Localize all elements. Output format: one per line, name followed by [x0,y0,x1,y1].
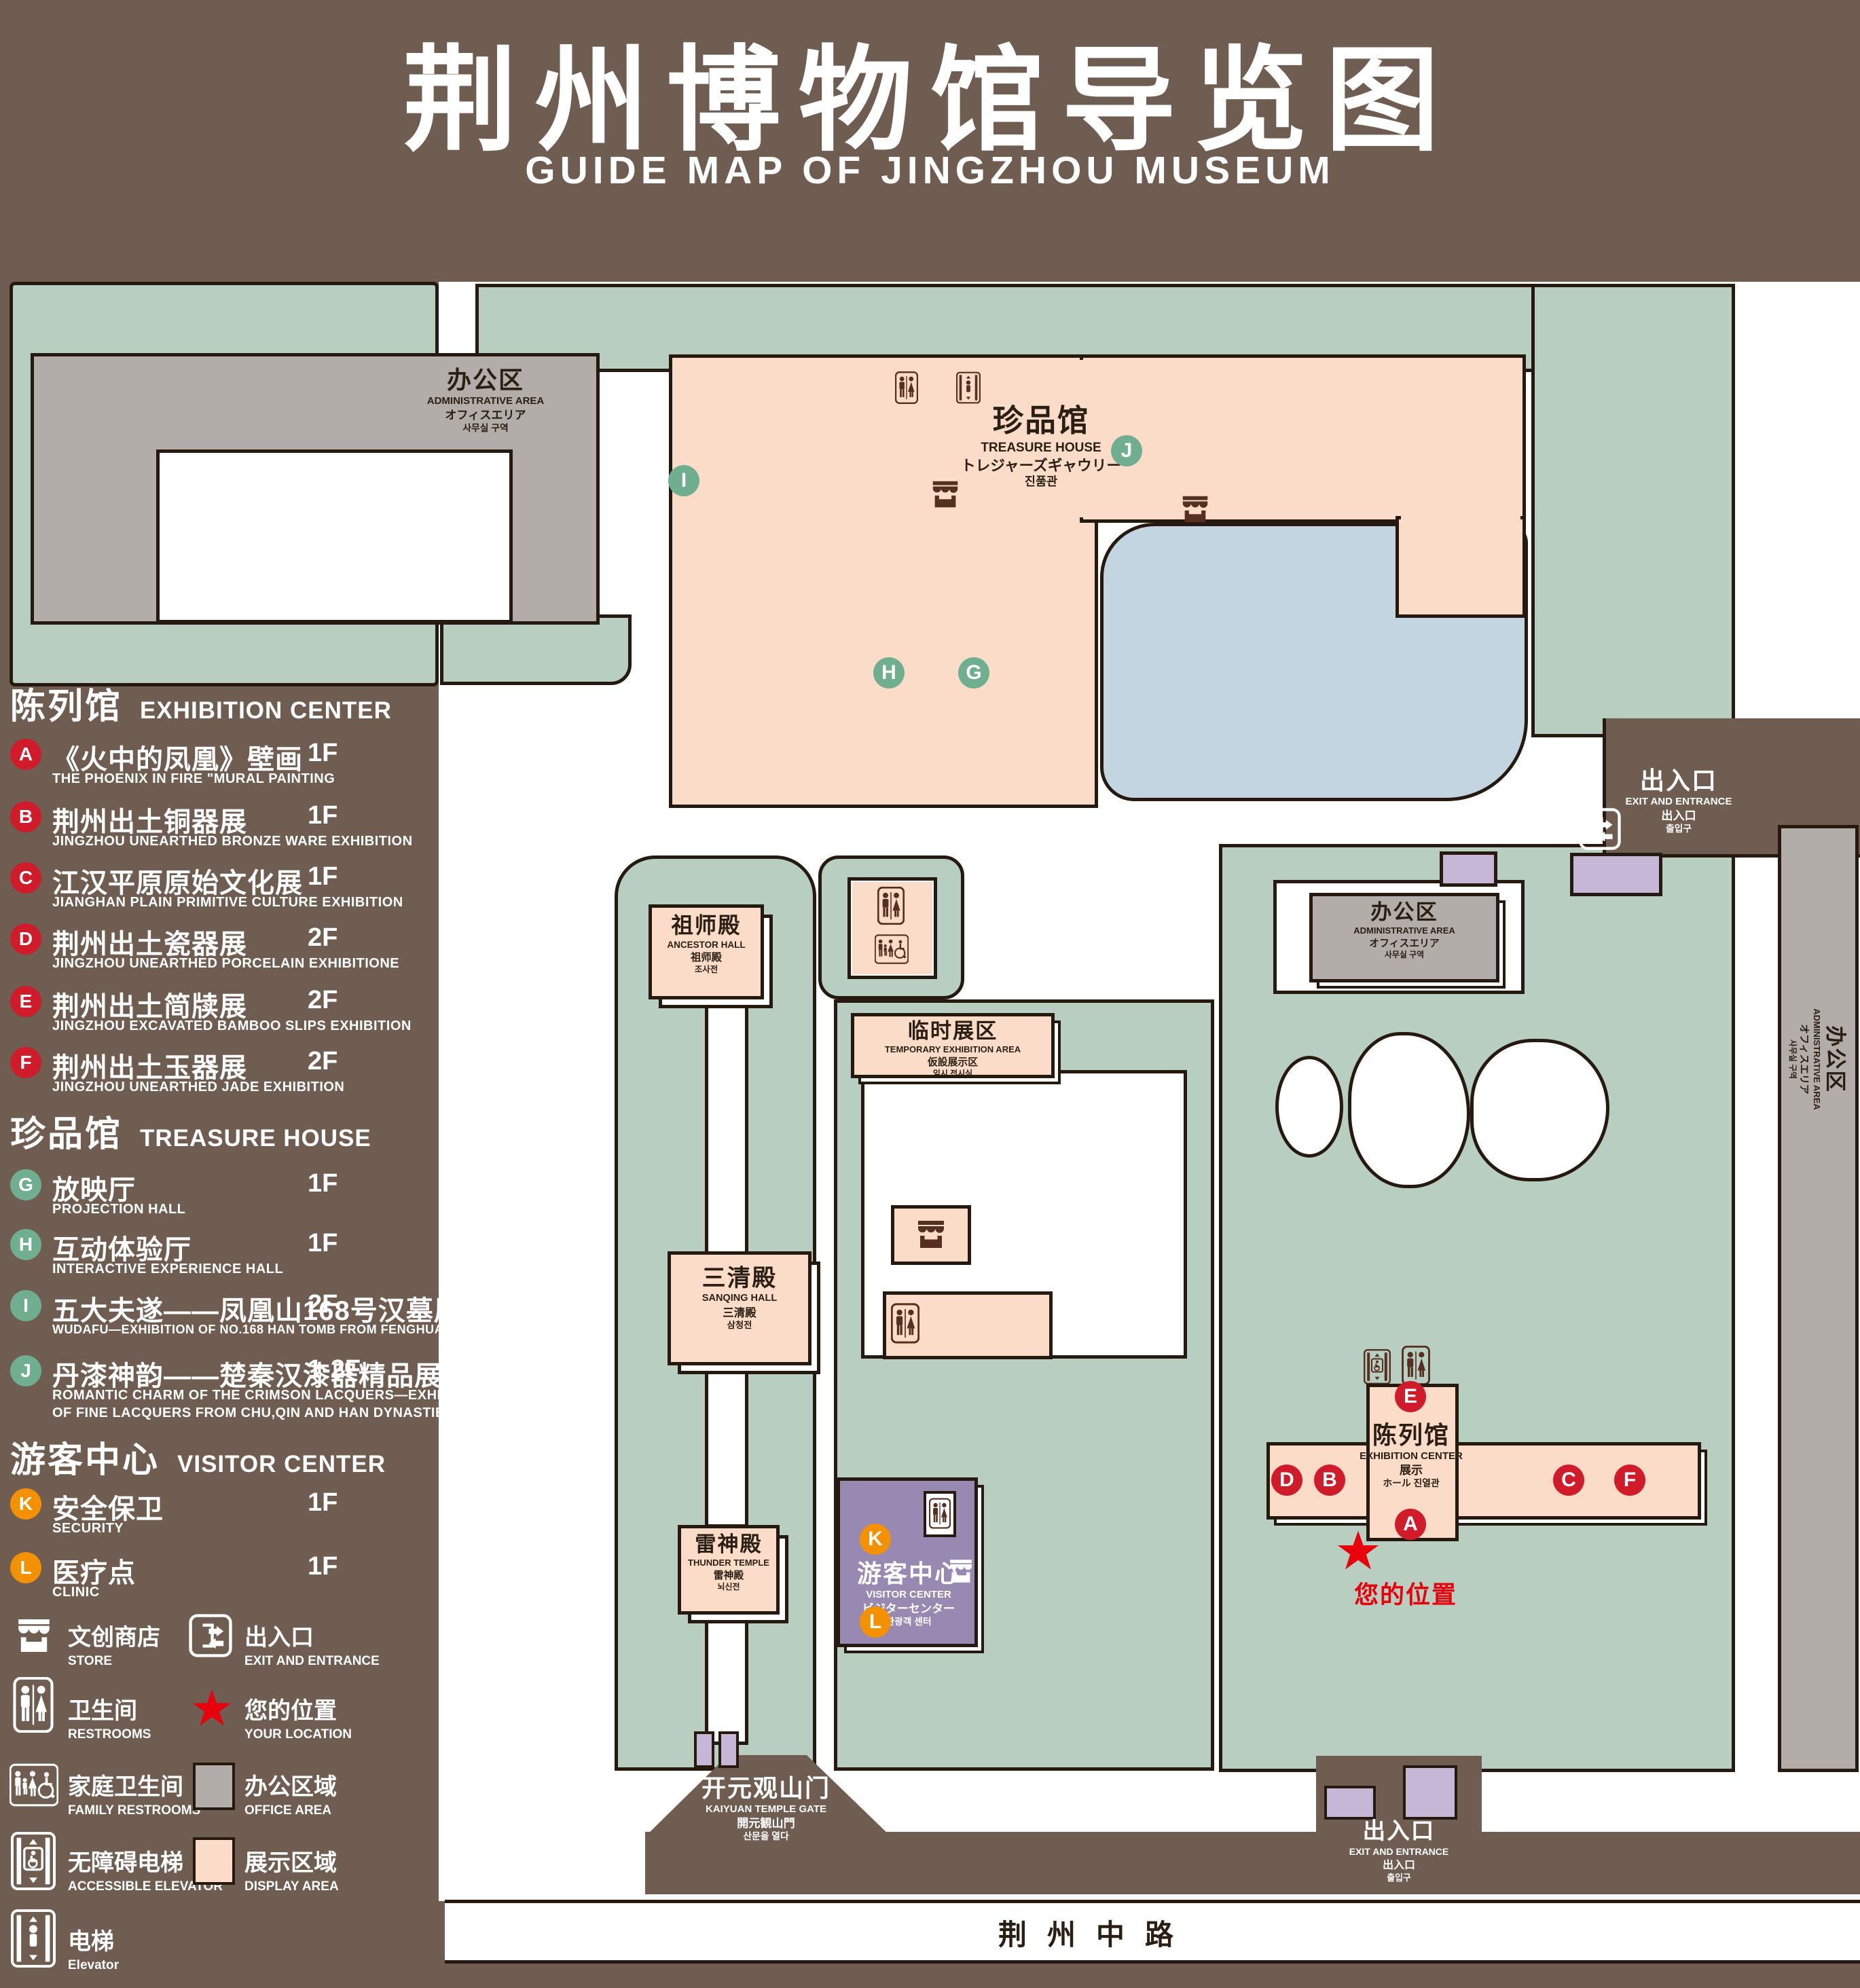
gate-pillar [718,1731,739,1768]
kaiyuan-gate-label: 开元观山门 KAIYUAN TEMPLE GATE 開元観山門 산문을 열다 [664,1773,868,1843]
exit-entrance-icon [189,1613,232,1658]
ancestor-hall-label: 祖师殿 ANCESTOR HALL 祖师殿 조사전 [642,913,771,975]
legend-item-E: E 荆州出土简牍展 JINGZHOU EXCAVATED BAMBOO SLIP… [10,986,377,1043]
exit-top-label: 出入口 EXIT AND ENTRANCE 出入口 출입구 [1611,766,1747,835]
lawn-right-column [1531,284,1735,737]
map-badge-B: B [1314,1465,1345,1496]
temporary-exhibition-label: 临时展区 TEMPORARY EXHIBITION AREA 仮設展示区 임시 … [851,1018,1055,1079]
store-icon [914,1215,948,1253]
accessible-elevator-icon [1364,1347,1391,1386]
legend-item-I: I 五大夫遂——凤凰山168号汉墓展 WUDAFU—EXHIBITION OF … [10,1290,377,1347]
thunder-temple-label: 雷神殿 THUNDER TEMPLE 雷神殿 뇌신전 [671,1532,786,1592]
legend-symbol-your-location: 您的位置YOUR LOCATION [244,1692,352,1742]
gate-building [1403,1765,1457,1820]
gate-building [1440,851,1497,887]
garden-pond [1275,1056,1343,1158]
gate-building [1570,853,1662,896]
temple-path [705,1609,748,1745]
page-subtitle: GUIDE MAP OF JINGZHOU MUSEUM [0,148,1860,193]
legend-symbol-elevator: 电梯Elevator [68,1923,119,1973]
temple-path [705,995,748,1256]
legend-item-J: J 丹漆神韵——楚秦汉漆器精品展 ROMANTIC CHARM OF THE C… [10,1355,377,1437]
admin-strip-label: 办公区 ADMINISTRATIVE AREA オフィスエリア 사무실 구역 [1781,917,1855,1202]
map-badge-L: L [860,1606,891,1638]
location-star-icon [1336,1529,1380,1572]
admin-top-left-label: 办公区 ADMINISTRATIVE AREA オフィスエリア 사무실 구역 [343,365,628,435]
temple-path [705,1361,748,1528]
legend-section-visitor-center: 游客中心VISITOR CENTER [10,1431,386,1482]
legend-item-L: L 医疗点 CLINIC 1F [10,1552,377,1609]
family-restrooms-icon [875,932,909,967]
legend-item-A: A 《火中的凤凰》壁画 THE PHOENIX IN FIRE "MURAL P… [10,739,377,796]
legend-item-B: B 荆州出土铜器展 JINGZHOU UNEARTHED BRONZE WARE… [10,801,377,858]
guide-map-poster: 荆州博物馆导览图 GUIDE MAP OF JINGZHOU MUSEUM 办公… [0,0,1860,1988]
legend-symbol-restrooms: 卫生间RESTROOMS [68,1692,151,1742]
legend-symbol-display-area: 展示区域DISPLAY AREA [244,1844,339,1894]
legend-item-G: G 放映厅 PROJECTION HALL 1F [10,1169,377,1226]
map-badge-F: F [1614,1465,1645,1496]
legend-symbol-store: 文创商店STORE [68,1619,160,1669]
display-area-swatch [193,1837,235,1885]
restrooms-icon [11,1677,56,1733]
map-badge-D: D [1271,1465,1302,1496]
map-badge-I: I [668,465,699,496]
legend-section-exhibition-center: 陈列馆EXHIBITION CENTER [10,678,392,729]
elevator-icon [11,1909,56,1968]
legend-symbol-office-area: 办公区域OFFICE AREA [244,1768,337,1818]
location-star-icon [192,1688,232,1729]
legend-item-H: H 互动体验厅 INTERACTIVE EXPERIENCE HALL 1F [10,1229,377,1286]
lawn-below-admin [440,614,632,685]
store-icon [14,1616,54,1655]
legend-symbol-exit: 出入口EXIT AND ENTRANCE [244,1619,380,1669]
gate-pillar [694,1731,714,1768]
restrooms-icon [891,1302,919,1345]
treasure-house-east-stub [1396,516,1526,618]
your-location-label: 您的位置 [1297,1575,1514,1610]
map-badge-J: J [1111,435,1142,466]
map-badge-A: A [1395,1509,1426,1540]
family-restrooms-icon [10,1760,58,1810]
road-label: 荆州中路 [998,1912,1194,1953]
store-icon [1179,490,1211,528]
legend-section-treasure-house: 珍品馆TREASURE HOUSE [10,1105,371,1156]
legend-item-D: D 荆州出土瓷器展 JINGZHOU UNEARTHED PORCELAIN E… [10,923,377,980]
legend-symbol-family-restrooms: 家庭卫生间FAMILY RESTROOMS [68,1768,200,1818]
exit-bottom-label: 出入口 EXIT AND ENTRANCE 出入口 출입구 [1317,1818,1480,1883]
map-badge-H: H [873,657,905,688]
gate-building [1324,1786,1376,1820]
seam-cover [1401,511,1520,524]
sanqing-hall-label: 三清殿 SANQING HALL 三清殿 삼청전 [668,1264,812,1331]
map-badge-G: G [958,657,989,688]
legend-item-K: K 安全保卫 SECURITY 1F [10,1488,377,1545]
legend-item-C: C 江汉平原原始文化展 JIANGHAN PLAIN PRIMITIVE CUL… [10,862,377,919]
admin-courtyard [156,449,513,623]
restrooms-icon [877,887,905,925]
restrooms-icon [1402,1346,1430,1385]
map-badge-K: K [860,1524,891,1555]
office-area-swatch [193,1763,235,1810]
legend-item-F: F 荆州出土玉器展 JINGZHOU UNEARTHED JADE EXHIBI… [10,1047,377,1104]
map-badge-C: C [1553,1465,1584,1496]
accessible-elevator-icon [11,1832,56,1890]
admin-right-label: 办公区 ADMINISTRATIVE AREA オフィスエリア 사무실 구역 [1309,900,1499,960]
restrooms-icon [929,1496,951,1531]
map-badge-E: E [1395,1381,1426,1412]
